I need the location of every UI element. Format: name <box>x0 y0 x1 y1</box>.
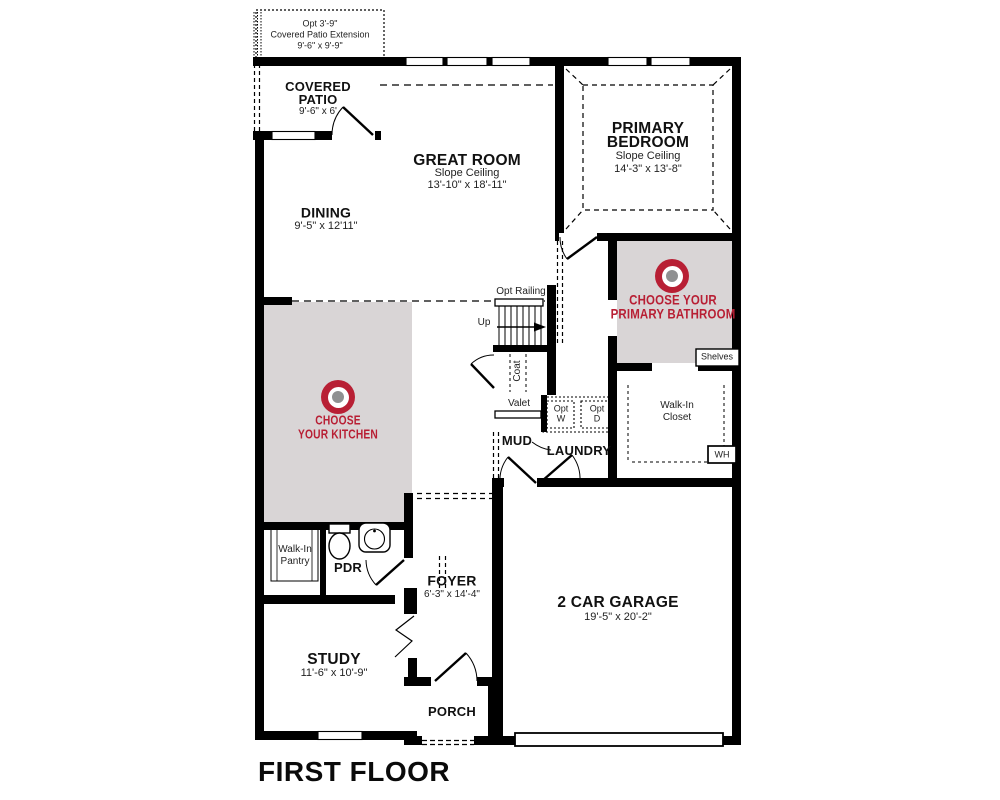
opt-railing-label: Opt Railing <box>496 287 545 298</box>
target-ring <box>328 387 349 408</box>
foyer-label: FOYER <box>427 574 476 589</box>
primary-bedroom-ceiling: Slope Ceiling <box>616 151 681 163</box>
covered-patio-dims: 9'-6" x 6' <box>299 107 337 118</box>
choose-primary-bathroom-target-icon[interactable] <box>655 259 689 293</box>
coat-closet-label: Coat <box>513 360 524 381</box>
walk-in-closet-label: Walk-In <box>660 401 694 412</box>
dining-label: DINING <box>301 206 351 221</box>
target-ring <box>662 266 683 287</box>
water-heater-label: WH <box>715 450 730 459</box>
study-dims: 11'-6" x 10'-9" <box>301 668 368 680</box>
dining-dims: 9'-5" x 12'11" <box>294 221 357 233</box>
choose-kitchen-callout[interactable]: YOUR KITCHEN <box>298 428 378 441</box>
porch-label: PORCH <box>428 705 476 719</box>
study-label: STUDY <box>307 652 361 668</box>
choose-kitchen-target-icon[interactable] <box>321 380 355 414</box>
opt-patio-extension-dims: 9'-6" x 9'-9" <box>297 41 342 50</box>
valet-label: Valet <box>508 399 530 410</box>
first-floor-plan: Opt 3'-9" Covered Patio Extension 9'-6" … <box>0 0 1000 800</box>
target-dot <box>666 270 678 282</box>
great-room-dims: 13'-10" x 18'-11" <box>427 180 506 192</box>
choose-kitchen-callout[interactable]: CHOOSE <box>315 414 360 427</box>
opt-washer-label: W <box>557 414 566 423</box>
primary-bedroom-dims: 14'-3" x 13'-8" <box>614 164 682 176</box>
opt-patio-extension-label: Opt 3'-9" <box>303 19 338 28</box>
foyer-dims: 6'-3" x 14'-4" <box>424 590 480 601</box>
powder-room-label: PDR <box>334 561 362 575</box>
mud-room-label: MUD <box>502 434 532 448</box>
shelves-label: Shelves <box>701 352 733 361</box>
walk-in-pantry-label: Pantry <box>281 557 310 568</box>
great-room-ceiling: Slope Ceiling <box>435 168 500 180</box>
walk-in-closet-label: Closet <box>663 413 691 424</box>
garage-label: 2 CAR GARAGE <box>557 595 678 611</box>
opt-dryer-label: D <box>594 414 601 423</box>
floor-plan-drawing <box>0 0 1000 800</box>
opt-patio-extension-label: Covered Patio Extension <box>270 30 369 39</box>
garage-dims: 19'-5" x 20'-2" <box>584 612 652 624</box>
page-title: FIRST FLOOR <box>258 756 450 788</box>
laundry-label: LAUNDRY <box>547 444 611 458</box>
walk-in-pantry-label: Walk-In <box>278 545 312 556</box>
stairs-up-label: Up <box>478 318 491 329</box>
choose-primary-bathroom-callout[interactable]: PRIMARY BATHROOM <box>611 307 736 322</box>
primary-bedroom-label: BEDROOM <box>607 135 689 151</box>
target-dot <box>332 391 344 403</box>
